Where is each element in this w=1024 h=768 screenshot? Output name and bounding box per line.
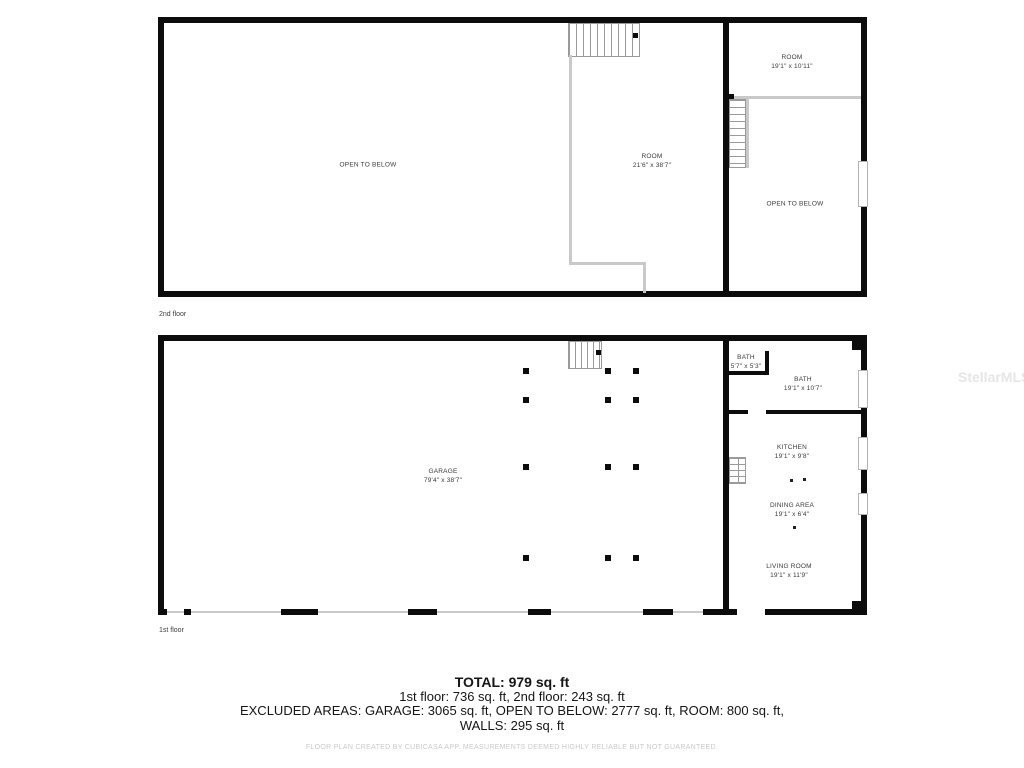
wall-1f-corner-top-right	[852, 338, 864, 350]
wall-1f-bottom-seg1	[158, 609, 167, 615]
wall-2f-bottom	[158, 291, 867, 297]
room-dims: 19'1" x 6'4"	[770, 510, 814, 519]
room-label-bath: BATH 19'1" x 10'7"	[784, 375, 822, 393]
room-label-living: LIVING ROOM 19'1" x 11'9"	[766, 562, 812, 580]
garage-post	[523, 368, 529, 374]
garage-post	[605, 397, 611, 403]
garage-post	[633, 464, 639, 470]
room-label-open-to-below-right: OPEN TO BELOW	[767, 200, 824, 209]
wall-1f-bottom-seg2	[184, 609, 191, 615]
garage-post	[605, 368, 611, 374]
room-label-room-main: ROOM 21'6" x 38'7"	[633, 152, 671, 170]
window-2f-right	[858, 161, 868, 207]
room-dims: 21'6" x 38'7"	[633, 161, 671, 170]
garage-post	[605, 555, 611, 561]
wall-bath-kitchen-left	[729, 410, 748, 414]
room-name: GARAGE	[424, 467, 462, 476]
fixture-dot	[790, 479, 793, 482]
room-dims: 19'1" x 10'11"	[771, 62, 813, 71]
stellar-mls-watermark: StellarMLS	[958, 369, 1024, 385]
room-name: DINING AREA	[770, 501, 814, 510]
garage-post	[633, 555, 639, 561]
fixture-dot	[803, 478, 806, 481]
garage-post	[523, 555, 529, 561]
staircase-kitchen-icon	[729, 457, 746, 484]
staircase-2f-top-icon	[568, 23, 640, 57]
garage-post	[523, 397, 529, 403]
garage-post	[633, 368, 639, 374]
room-dims: 19'1" x 11'9"	[766, 571, 812, 580]
room-name: BATH	[731, 353, 762, 362]
wall-1f-left	[158, 335, 164, 615]
summary-floors: 1st floor: 736 sq. ft, 2nd floor: 243 sq…	[0, 690, 1024, 705]
wall-1f-bottom-seg5	[528, 609, 551, 615]
room-label-room-right: ROOM 19'1" x 10'11"	[771, 53, 813, 71]
room-dims: 5'7" x 5'3"	[731, 362, 762, 371]
floor-plan-canvas: OPEN TO BELOW ROOM 21'6" x 38'7" ROOM 19…	[0, 0, 1024, 768]
summary-excluded: EXCLUDED AREAS: GARAGE: 3065 sq. ft, OPE…	[0, 704, 1024, 719]
room-label-kitchen: KITCHEN 19'1" x 9'8"	[775, 443, 809, 461]
wall-2f-top	[158, 17, 867, 23]
wall-1f-top	[158, 335, 867, 341]
floor-label-1st: 1st floor	[159, 627, 184, 634]
wall-1f-corner-bottom-right	[852, 601, 864, 614]
thin-wall-2f-room-lower	[643, 262, 646, 293]
wall-joint-2f-stairs	[633, 33, 638, 38]
room-name: ROOM	[633, 152, 671, 161]
area-summary: TOTAL: 979 sq. ft 1st floor: 736 sq. ft,…	[0, 675, 1024, 733]
disclaimer-text: FLOOR PLAN CREATED BY CUBICASA APP. MEAS…	[0, 744, 1024, 751]
room-label-open-to-below-main: OPEN TO BELOW	[340, 161, 397, 170]
room-dims: 19'1" x 9'8"	[775, 452, 809, 461]
garage-door-threshold	[158, 611, 725, 613]
wall-joint-1f-stairs	[596, 350, 601, 355]
summary-total: TOTAL: 979 sq. ft	[0, 675, 1024, 690]
wall-1f-bottom-seg6	[643, 609, 673, 615]
wall-1f-bottom-seg4	[408, 609, 437, 615]
summary-walls: WALLS: 295 sq. ft	[0, 719, 1024, 734]
room-dims: 79'4" x 38'7"	[424, 476, 462, 485]
room-label-bath-small: BATH 5'7" x 5'3"	[731, 353, 762, 371]
wall-bath-kitchen-right	[766, 410, 861, 414]
fixture-dot	[793, 526, 796, 529]
garage-post	[523, 464, 529, 470]
window-1f-right-1	[858, 370, 868, 408]
garage-post	[605, 464, 611, 470]
staircase-1f-top-icon	[568, 341, 602, 369]
thin-wall-2f-room-left	[569, 55, 572, 265]
wall-1f-bottom-seg7	[703, 609, 737, 615]
window-1f-right-3	[858, 493, 868, 515]
room-dims: 19'1" x 10'7"	[784, 384, 822, 393]
room-name: OPEN TO BELOW	[340, 161, 397, 170]
room-name: ROOM	[771, 53, 813, 62]
wall-2f-right	[861, 17, 867, 297]
room-name: KITCHEN	[775, 443, 809, 452]
floor-label-2nd: 2nd floor	[159, 311, 186, 318]
wall-1f-bottom-seg8	[765, 609, 861, 615]
room-label-garage: GARAGE 79'4" x 38'7"	[424, 467, 462, 485]
garage-post	[633, 397, 639, 403]
room-name: LIVING ROOM	[766, 562, 812, 571]
staircase-2f-right-icon	[729, 99, 746, 168]
room-name: OPEN TO BELOW	[767, 200, 824, 209]
thin-wall-2f-stair-side	[746, 99, 749, 168]
wall-bath-small-bottom	[729, 371, 769, 375]
room-label-dining: DINING AREA 19'1" x 6'4"	[770, 501, 814, 519]
thin-wall-2f-room-step	[569, 262, 646, 265]
window-1f-right-2	[858, 437, 868, 470]
room-name: BATH	[784, 375, 822, 384]
wall-2f-left	[158, 17, 164, 297]
wall-1f-bottom-seg3	[281, 609, 318, 615]
